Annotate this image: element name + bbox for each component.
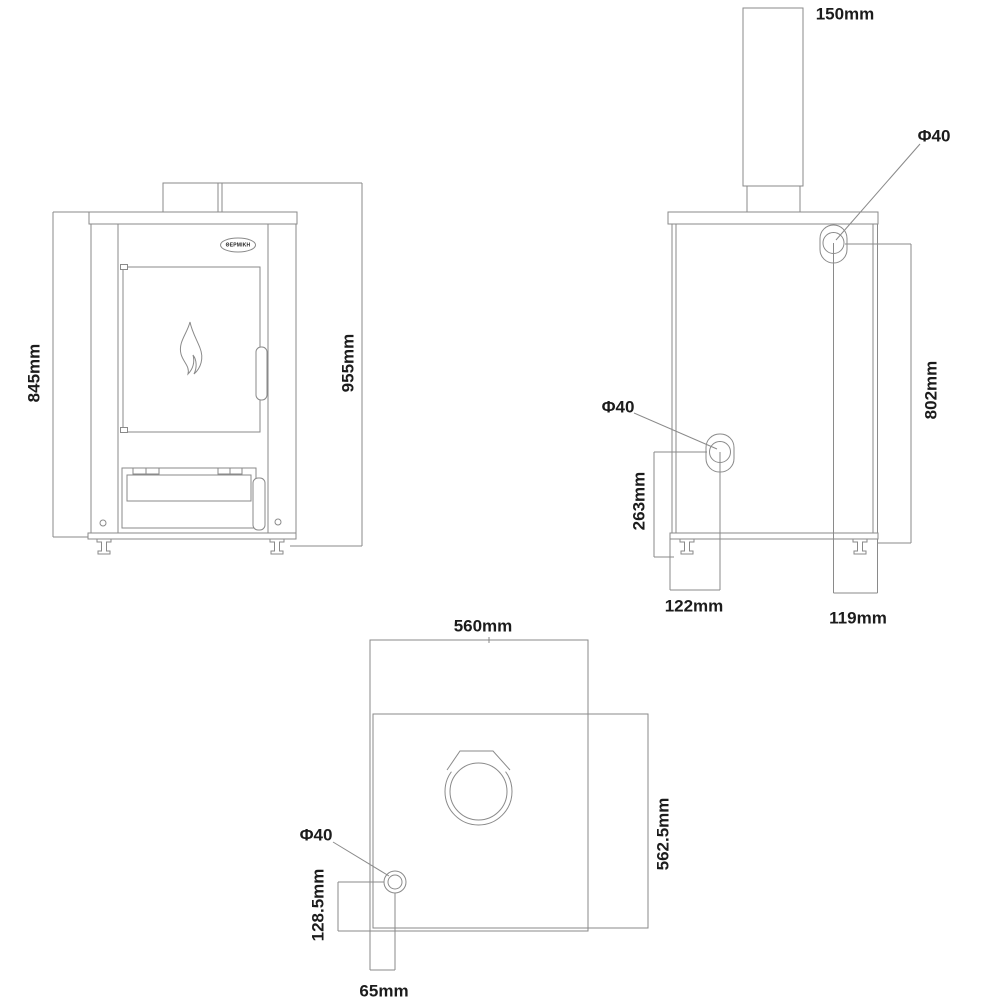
top-width-label: 560mm — [454, 617, 513, 636]
drawing-canvas: 845mm ΘΕΡΜΙΚΗ 955mm — [0, 0, 1000, 1000]
ash-drawer-outline — [122, 468, 256, 528]
back-wall-lines — [676, 224, 873, 533]
front-leg-right — [270, 539, 284, 554]
top-fitting-depth-dim-lines — [338, 882, 384, 931]
upper-fitting-height-label: 802mm — [922, 361, 941, 420]
front-top-plate — [89, 212, 297, 224]
drawer-latch-left-b — [146, 468, 159, 474]
back-leg-right — [853, 539, 867, 554]
front-chimney-outline — [163, 183, 222, 212]
back-leg-left — [680, 539, 694, 554]
top-body-outline — [373, 714, 648, 928]
drawer-latch-right-b — [230, 468, 242, 474]
back-flue-pipe — [743, 8, 803, 186]
front-base-plate — [88, 533, 296, 539]
top-fitting-diameter-label: Φ40 — [300, 826, 333, 845]
drawer-latch-left-a — [133, 468, 146, 474]
top-depth-label: 562.5mm — [654, 798, 673, 871]
front-body-height-dim-lines — [53, 212, 89, 537]
front-total-height-label: 955mm — [339, 334, 358, 393]
top-fitting-depth-label: 128.5mm — [309, 869, 328, 942]
back-flue-collar — [747, 186, 800, 212]
top-fitting-width-label: 65mm — [359, 982, 408, 1001]
lower-fitting-diameter-label: Φ40 — [602, 398, 635, 417]
front-leg-left — [97, 539, 111, 554]
back-body-outline — [672, 224, 878, 533]
lower-fitting-offset-dim-lines — [670, 539, 720, 590]
door-hinge-bottom — [121, 428, 128, 433]
flue-pipe-width-label: 150mm — [816, 5, 875, 24]
lower-fitting-height-label: 263mm — [630, 472, 649, 531]
back-top-plate — [668, 212, 878, 224]
upper-fitting-offset-dim-lines — [834, 539, 878, 593]
front-screw-right — [275, 519, 281, 525]
front-panel-edges — [118, 224, 268, 533]
door-hinge-top — [121, 265, 128, 270]
top-fitting-boss — [384, 871, 406, 893]
stove-technical-drawing: 845mm ΘΕΡΜΙΚΗ 955mm — [0, 0, 1000, 1000]
fire-door-glass — [123, 267, 260, 432]
back-base-plate — [670, 533, 878, 539]
front-body-height-label: 845mm — [25, 344, 44, 403]
upper-fitting-diameter-label: Φ40 — [918, 127, 951, 146]
flame-icon — [180, 322, 201, 374]
door-handle — [256, 347, 267, 400]
upper-fitting-offset-label: 119mm — [829, 609, 887, 628]
lower-fitting-offset-label: 122mm — [665, 597, 724, 616]
front-view: 845mm ΘΕΡΜΙΚΗ 955mm — [25, 183, 363, 554]
brand-badge-label: ΘΕΡΜΙΚΗ — [226, 243, 251, 249]
front-screw-left — [100, 520, 106, 526]
top-view: 560mm Φ40 128.5mm 65mm 562.5mm — [300, 617, 673, 1001]
ash-drawer-front — [127, 475, 251, 501]
ash-drawer-handle — [253, 478, 265, 530]
drawer-latch-right-a — [218, 468, 230, 474]
top-fitting-leader-line — [333, 842, 389, 876]
back-view: 150mm Φ40 802mm Φ40 263mm 122mm 119mm — [602, 5, 951, 628]
